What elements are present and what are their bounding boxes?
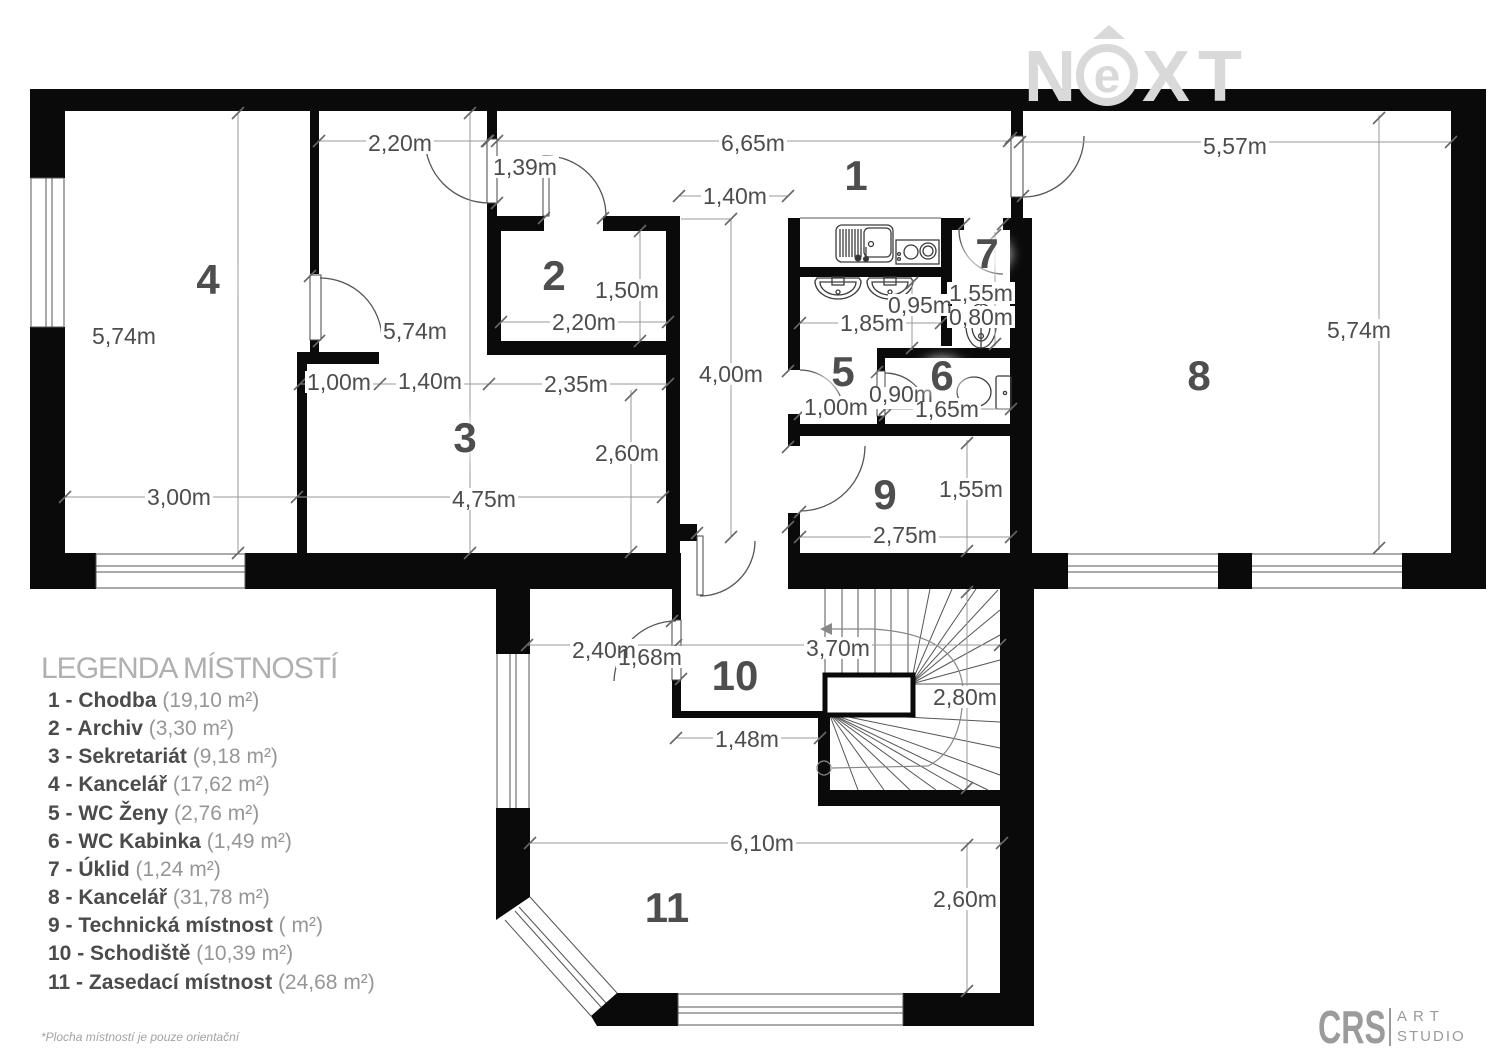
svg-text:3: 3 bbox=[453, 414, 476, 461]
svg-text:0,80m: 0,80m bbox=[949, 304, 1013, 330]
svg-text:9 - Technická místnost ( m²): 9 - Technická místnost ( m²) bbox=[48, 914, 323, 937]
svg-text:8 - Kancelář (31,78 m²): 8 - Kancelář (31,78 m²) bbox=[48, 886, 270, 909]
svg-text:1,40m: 1,40m bbox=[398, 368, 462, 394]
svg-text:CRS: CRS bbox=[1318, 1001, 1386, 1053]
svg-text:2: 2 bbox=[542, 252, 565, 299]
svg-text:1,39m: 1,39m bbox=[493, 154, 557, 180]
svg-text:6: 6 bbox=[930, 352, 953, 399]
svg-text:1,55m: 1,55m bbox=[939, 476, 1003, 502]
svg-text:3,70m: 3,70m bbox=[806, 635, 870, 661]
svg-text:5,74m: 5,74m bbox=[1327, 317, 1391, 343]
svg-text:11: 11 bbox=[645, 884, 689, 931]
svg-text:ART: ART bbox=[1397, 1008, 1445, 1025]
svg-text:2,75m: 2,75m bbox=[873, 522, 937, 548]
svg-text:6 - WC Kabinka (1,49 m²): 6 - WC Kabinka (1,49 m²) bbox=[48, 830, 292, 853]
svg-text:4 - Kancelář (17,62 m²): 4 - Kancelář (17,62 m²) bbox=[48, 773, 270, 796]
svg-text:5: 5 bbox=[831, 348, 854, 395]
svg-text:10: 10 bbox=[712, 652, 759, 699]
svg-text:7: 7 bbox=[975, 230, 998, 277]
svg-text:N: N bbox=[1024, 37, 1076, 117]
svg-text:1,00m: 1,00m bbox=[804, 394, 868, 420]
svg-text:2,60m: 2,60m bbox=[595, 440, 659, 466]
svg-text:T: T bbox=[1198, 37, 1242, 117]
svg-text:5,74m: 5,74m bbox=[383, 318, 447, 344]
svg-text:4,00m: 4,00m bbox=[699, 361, 763, 387]
svg-text:7 - Úklid (1,24 m²): 7 - Úklid (1,24 m²) bbox=[48, 857, 221, 881]
svg-text:2,80m: 2,80m bbox=[933, 684, 997, 710]
svg-text:6,10m: 6,10m bbox=[730, 830, 794, 856]
svg-text:1,40m: 1,40m bbox=[703, 183, 767, 209]
svg-text:10 - Schodiště (10,39 m²): 10 - Schodiště (10,39 m²) bbox=[48, 942, 293, 965]
svg-text:*Plocha místností je pouze ori: *Plocha místností je pouze orientační bbox=[41, 1030, 241, 1044]
svg-text:4,75m: 4,75m bbox=[452, 486, 516, 512]
svg-text:1,48m: 1,48m bbox=[715, 726, 779, 752]
svg-text:3,00m: 3,00m bbox=[147, 484, 211, 510]
svg-text:STUDIO: STUDIO bbox=[1397, 1028, 1466, 1045]
svg-text:8: 8 bbox=[1187, 352, 1210, 399]
svg-text:9: 9 bbox=[873, 471, 896, 518]
svg-text:5 - WC Ženy (2,76 m²): 5 - WC Ženy (2,76 m²) bbox=[48, 801, 259, 825]
svg-text:2,20m: 2,20m bbox=[368, 130, 432, 156]
svg-text:1,50m: 1,50m bbox=[595, 277, 659, 303]
svg-text:2,20m: 2,20m bbox=[552, 309, 616, 335]
svg-text:1,65m: 1,65m bbox=[915, 396, 979, 422]
svg-text:5,74m: 5,74m bbox=[92, 323, 156, 349]
svg-text:4: 4 bbox=[196, 256, 220, 303]
svg-text:2,35m: 2,35m bbox=[544, 371, 608, 397]
svg-text:0,95m: 0,95m bbox=[888, 292, 952, 318]
svg-text:1,55m: 1,55m bbox=[949, 280, 1013, 306]
svg-text:11 - Zasedací místnost (24,68: 11 - Zasedací místnost (24,68 m²) bbox=[48, 971, 375, 994]
svg-text:5,57m: 5,57m bbox=[1203, 133, 1267, 159]
svg-text:1 - Chodba (19,10 m²): 1 - Chodba (19,10 m²) bbox=[48, 689, 259, 712]
svg-text:LEGENDA MÍSTNOSTÍ: LEGENDA MÍSTNOSTÍ bbox=[41, 652, 339, 685]
svg-text:e: e bbox=[1094, 50, 1121, 103]
svg-text:1,68m: 1,68m bbox=[618, 644, 682, 670]
svg-text:1,00m: 1,00m bbox=[307, 369, 371, 395]
svg-text:3 - Sekretariát (9,18 m²): 3 - Sekretariát (9,18 m²) bbox=[48, 745, 278, 768]
svg-text:2 - Archiv (3,30 m²): 2 - Archiv (3,30 m²) bbox=[48, 717, 234, 740]
svg-text:2,60m: 2,60m bbox=[933, 886, 997, 912]
svg-text:1: 1 bbox=[844, 152, 867, 199]
svg-text:6,65m: 6,65m bbox=[721, 130, 785, 156]
svg-text:X: X bbox=[1142, 37, 1190, 117]
